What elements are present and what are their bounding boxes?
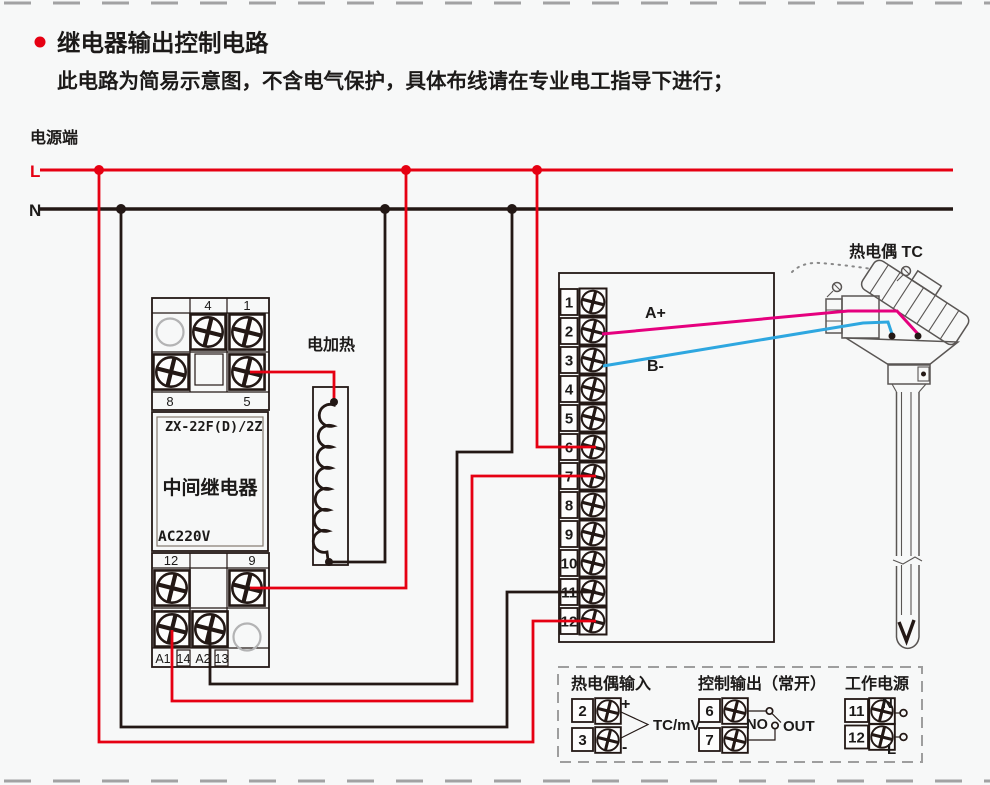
wire-a-plus-label: A+ bbox=[645, 305, 666, 322]
live-line-label: L bbox=[30, 162, 40, 181]
svg-text:2: 2 bbox=[578, 703, 586, 720]
relay-socket: 4 1 8 5 ZX-22F(D)/2Z 中间继电器 AC220V 12 9 A… bbox=[152, 298, 269, 667]
out-label: OUT bbox=[783, 718, 815, 735]
svg-text:11: 11 bbox=[849, 703, 865, 720]
svg-text:5: 5 bbox=[565, 411, 573, 428]
relay-model: ZX-22F(D)/2Z bbox=[165, 419, 263, 435]
svg-text:1: 1 bbox=[565, 295, 573, 312]
wire-n-to-heater bbox=[331, 209, 385, 562]
relay-terminal-5: 5 bbox=[243, 394, 250, 409]
controller-terminal-strip: 1 2 3 4 5 6 7 8 9 10 bbox=[561, 289, 607, 635]
no-label: NO bbox=[746, 717, 768, 733]
power-terminal-label: 电源端 bbox=[30, 128, 78, 147]
svg-text:9: 9 bbox=[565, 527, 573, 544]
switch-contact bbox=[766, 708, 772, 714]
switch-blade bbox=[772, 714, 781, 723]
relay-terminal-4: 4 bbox=[204, 298, 211, 313]
relay-voltage: AC220V bbox=[158, 529, 211, 545]
terminal-legend: 热电偶输入 2 + 3 - TC/mV 控制输出（常开） 6 7 bbox=[558, 667, 922, 762]
relay-terminal-12: 12 bbox=[164, 553, 178, 568]
n-pin-label: N bbox=[882, 695, 893, 712]
page-title: 继电器输出控制电路 bbox=[57, 29, 269, 56]
cap-screw-icon bbox=[827, 283, 842, 298]
svg-text:2: 2 bbox=[565, 324, 573, 341]
relay-mount-hole bbox=[234, 624, 261, 651]
thermocouple: 热电偶 TC bbox=[792, 242, 977, 648]
probe-arrow bbox=[899, 620, 914, 641]
legend-work-power-title: 工作电源 bbox=[845, 674, 909, 693]
relay-name: 中间继电器 bbox=[162, 476, 258, 499]
legend-control-output-title: 控制输出（常开） bbox=[698, 674, 826, 693]
svg-text:3: 3 bbox=[565, 353, 573, 370]
relay-mount-hole bbox=[157, 319, 184, 346]
thermocouple-label: 热电偶 TC bbox=[849, 242, 923, 261]
legend-tc-input-title: 热电偶输入 bbox=[571, 674, 651, 693]
wire-a2-to-n bbox=[210, 210, 512, 684]
terminal-row: 8 bbox=[561, 492, 607, 519]
terminal-row: 3 bbox=[561, 347, 607, 374]
relay-terminal-13: 13 bbox=[215, 652, 229, 666]
power-pin bbox=[900, 734, 907, 741]
thermocouple-shoulder bbox=[846, 338, 958, 365]
svg-text:7: 7 bbox=[705, 732, 713, 749]
junction-dots bbox=[94, 165, 922, 566]
svg-text:6: 6 bbox=[705, 703, 713, 720]
heater-label: 电加热 bbox=[307, 335, 355, 354]
terminal-row: 9 bbox=[561, 521, 607, 548]
neutral-line-label: N bbox=[29, 201, 41, 220]
wire-l-to-relay9 bbox=[250, 170, 406, 588]
terminal-row: 5 bbox=[561, 405, 607, 432]
heater-element: 电加热 bbox=[307, 335, 355, 565]
heater-coil bbox=[313, 402, 334, 560]
wiring-diagram-page: 继电器输出控制电路 此电路为简易示意图，不含电气保护，具体布线请在专业电工指导下… bbox=[0, 0, 990, 785]
relay-wiring-diagram: 继电器输出控制电路 此电路为简易示意图，不含电气保护，具体布线请在专业电工指导下… bbox=[0, 0, 990, 785]
relay-terminal-8: 8 bbox=[166, 394, 173, 409]
relay-terminal-a1: A1 bbox=[155, 652, 170, 666]
relay-terminal-a2: A2 bbox=[195, 652, 210, 666]
relay-terminal-14: 14 bbox=[177, 652, 191, 666]
legend-control-output: 控制输出（常开） 6 7 NO OUT bbox=[698, 674, 826, 753]
plus-sign: + bbox=[621, 696, 630, 713]
relay-terminal-9: 9 bbox=[248, 553, 255, 568]
terminal-row: 2 bbox=[561, 318, 607, 345]
svg-text:3: 3 bbox=[578, 732, 586, 749]
legend-work-power: 工作电源 11 N 12 L bbox=[845, 674, 909, 758]
terminal-row: 4 bbox=[561, 376, 607, 403]
switch-contact bbox=[772, 722, 778, 728]
tc-mv-label: TC/mV bbox=[653, 717, 701, 734]
legend-tc-input: 热电偶输入 2 + 3 - TC/mV bbox=[571, 674, 701, 756]
minus-sign: - bbox=[622, 739, 627, 756]
relay-terminal-1: 1 bbox=[243, 298, 250, 313]
bullet-icon bbox=[35, 37, 46, 48]
svg-text:10: 10 bbox=[561, 556, 578, 573]
thermocouple-head bbox=[842, 296, 879, 338]
l-pin-label: L bbox=[887, 741, 896, 758]
wire-n-to-terminal11 bbox=[121, 209, 596, 727]
page-subtitle: 此电路为简易示意图，不含电气保护，具体布线请在专业电工指导下进行； bbox=[57, 69, 734, 93]
thermocouple-chain bbox=[792, 263, 872, 272]
wire-b-minus-label: B- bbox=[647, 358, 664, 375]
terminal-row: 10 bbox=[561, 550, 607, 577]
power-pin bbox=[900, 710, 907, 717]
svg-text:4: 4 bbox=[565, 382, 574, 399]
svg-text:8: 8 bbox=[565, 498, 573, 515]
probe-outer-wall bbox=[897, 392, 920, 556]
svg-text:12: 12 bbox=[848, 730, 865, 747]
terminal-row: 1 bbox=[561, 289, 607, 316]
